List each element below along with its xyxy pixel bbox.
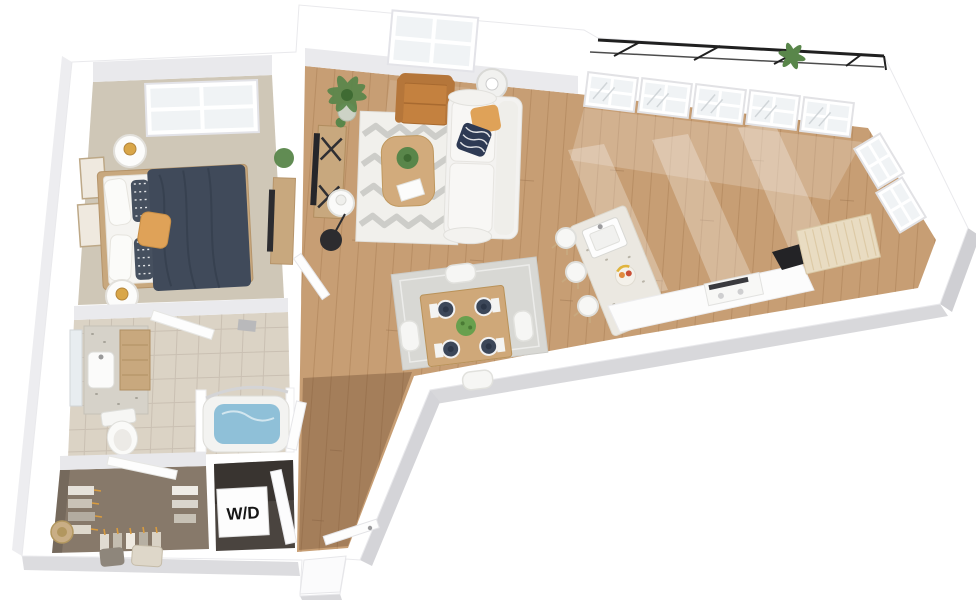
washer-dryer-unit: W/D — [217, 487, 269, 538]
entry-step — [300, 556, 346, 594]
window-pane — [204, 108, 254, 129]
washer-dryer-closet: W/D — [214, 460, 297, 551]
window-pane — [393, 40, 431, 63]
hat — [51, 521, 73, 543]
coffee-table — [381, 135, 435, 207]
bedroom-dresser — [267, 178, 296, 265]
table-lamp — [124, 143, 136, 155]
pillow-white — [108, 234, 132, 281]
side-table — [328, 190, 354, 216]
window-pane — [435, 19, 473, 42]
bedroom-plant — [274, 148, 294, 168]
faucet — [99, 355, 104, 360]
living-window — [388, 10, 478, 71]
bathroom — [66, 298, 294, 460]
window — [638, 78, 692, 118]
ceiling-vent — [237, 319, 256, 332]
sofa-cushion — [448, 163, 494, 232]
bed — [97, 164, 253, 294]
window-pane — [150, 87, 200, 108]
window-pane — [395, 16, 433, 39]
window — [746, 90, 800, 130]
window-pane — [203, 85, 253, 106]
table-lamp — [336, 195, 346, 205]
bathtub — [196, 387, 294, 452]
washer-dryer-label: W/D — [226, 503, 260, 524]
window — [584, 72, 638, 112]
window — [692, 84, 746, 124]
door-handle — [368, 526, 372, 530]
sofa — [443, 89, 522, 245]
nightstand — [114, 135, 146, 167]
bathroom-mirror — [70, 330, 82, 406]
pillow-accent — [137, 211, 172, 249]
bag — [131, 545, 162, 567]
floor-plan-canvas: W/D — [0, 0, 976, 600]
table-lamp — [116, 288, 128, 300]
leather-armchair — [395, 73, 456, 126]
window — [800, 97, 854, 137]
tub-water — [214, 404, 280, 444]
window-pane — [151, 110, 201, 131]
floor-plan-image: W/D — [0, 0, 976, 600]
vanity — [84, 326, 150, 414]
bag — [99, 547, 125, 567]
bedroom-window — [145, 80, 259, 136]
window-pane — [433, 43, 471, 66]
closet-shelves — [172, 486, 198, 523]
